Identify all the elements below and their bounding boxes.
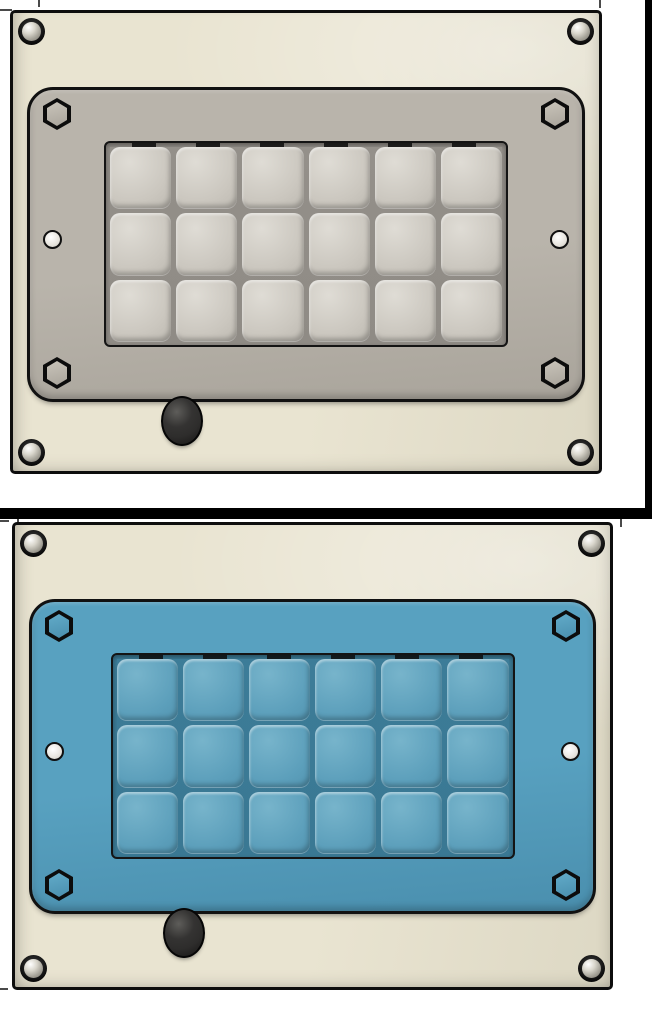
- keypad-button: [315, 725, 376, 786]
- side-hole-right: [550, 230, 569, 249]
- keypad-button: [249, 792, 310, 853]
- crop-tick: [599, 0, 601, 8]
- figure-canvas: [0, 0, 652, 1024]
- faceplate: [27, 87, 585, 402]
- membrane-keypad: [111, 653, 515, 859]
- hex-bolt-face: [556, 873, 576, 897]
- keypad-button: [375, 147, 436, 208]
- corner-screw-top-right: [567, 18, 594, 45]
- keypad-button: [242, 213, 303, 274]
- keypad-button: [242, 147, 303, 208]
- screw-head: [24, 534, 43, 553]
- hex-bolt-bottom-left: [45, 869, 73, 901]
- page-divider-bar: [0, 508, 652, 519]
- screw-head: [22, 443, 41, 462]
- keypad-grid: [117, 659, 509, 853]
- keypad-button: [176, 280, 237, 341]
- keypad-button: [315, 659, 376, 720]
- keypad-button: [183, 659, 244, 720]
- keypad-button: [183, 792, 244, 853]
- keypad-button: [110, 147, 171, 208]
- screw-head: [582, 534, 601, 553]
- keypad-button: [176, 213, 237, 274]
- corner-screw-bottom-left: [20, 955, 47, 982]
- keypad-button: [242, 280, 303, 341]
- keypad-button: [381, 659, 442, 720]
- hex-bolt-face: [545, 361, 565, 385]
- keypad-button: [309, 147, 370, 208]
- keypad-button: [441, 147, 502, 208]
- keypad-button: [117, 659, 178, 720]
- keypad-button: [375, 213, 436, 274]
- keypad-button: [110, 213, 171, 274]
- side-hole-left: [45, 742, 64, 761]
- hex-bolt-top-right: [552, 610, 580, 642]
- screw-head: [571, 22, 590, 41]
- keypad-button: [375, 280, 436, 341]
- page-edge-vertical-bar: [645, 0, 652, 519]
- hex-bolt-face: [556, 614, 576, 638]
- keypad-button: [176, 147, 237, 208]
- crop-tick: [38, 0, 40, 7]
- keypad-button: [441, 213, 502, 274]
- side-hole-right: [561, 742, 580, 761]
- keypad-button: [117, 725, 178, 786]
- keypad-button: [309, 280, 370, 341]
- keypad-button: [447, 659, 508, 720]
- crop-tick: [620, 519, 622, 527]
- round-knob: [163, 908, 205, 958]
- screw-head: [22, 22, 41, 41]
- round-knob: [161, 396, 203, 446]
- membrane-keypad: [104, 141, 508, 347]
- corner-screw-bottom-right: [578, 955, 605, 982]
- hex-bolt-bottom-left: [43, 357, 71, 389]
- crop-tick: [0, 520, 9, 522]
- screw-head: [571, 443, 590, 462]
- hex-bolt-face: [49, 873, 69, 897]
- hex-bolt-face: [47, 102, 67, 126]
- keypad-button: [381, 725, 442, 786]
- hex-bolt-top-left: [43, 98, 71, 130]
- keypad-button: [249, 659, 310, 720]
- keypad-button: [309, 213, 370, 274]
- hex-bolt-bottom-right: [552, 869, 580, 901]
- screw-head: [582, 959, 601, 978]
- hex-bolt-face: [545, 102, 565, 126]
- crop-tick: [0, 988, 8, 990]
- keypad-button: [441, 280, 502, 341]
- keypad-enclosure-blue: [12, 522, 613, 990]
- hex-bolt-face: [49, 614, 69, 638]
- hex-bolt-face: [47, 361, 67, 385]
- keypad-button: [381, 792, 442, 853]
- keypad-button: [110, 280, 171, 341]
- faceplate: [29, 599, 596, 914]
- keypad-button: [183, 725, 244, 786]
- hex-bolt-top-right: [541, 98, 569, 130]
- corner-screw-bottom-right: [567, 439, 594, 466]
- corner-screw-top-left: [18, 18, 45, 45]
- corner-screw-bottom-left: [18, 439, 45, 466]
- keypad-enclosure-gray: [10, 10, 602, 474]
- keypad-button: [447, 792, 508, 853]
- hex-bolt-top-left: [45, 610, 73, 642]
- keypad-button: [249, 725, 310, 786]
- keypad-button: [315, 792, 376, 853]
- corner-screw-top-right: [578, 530, 605, 557]
- corner-screw-top-left: [20, 530, 47, 557]
- crop-tick: [0, 9, 12, 11]
- hex-bolt-bottom-right: [541, 357, 569, 389]
- side-hole-left: [43, 230, 62, 249]
- keypad-button: [447, 725, 508, 786]
- screw-head: [24, 959, 43, 978]
- keypad-grid: [110, 147, 502, 341]
- keypad-button: [117, 792, 178, 853]
